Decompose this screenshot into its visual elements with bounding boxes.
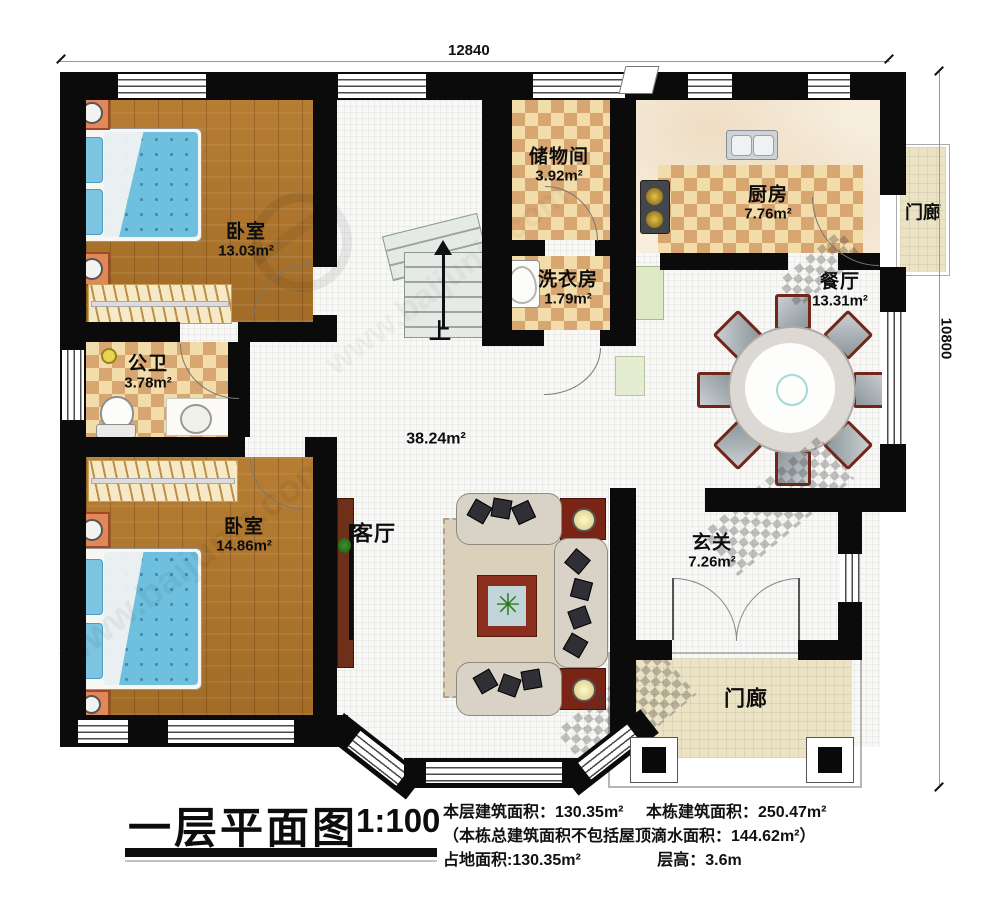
dimension-label-top: 12840 xyxy=(448,42,490,59)
coffee-table: ✳ xyxy=(477,575,537,637)
ceiling-lamp xyxy=(101,348,117,364)
porch-column-core xyxy=(642,747,666,773)
room-area: 1.79m² xyxy=(538,291,598,307)
dimension-line-top xyxy=(60,61,890,62)
info-floor-height: 层高：3.6m xyxy=(657,852,741,869)
sink-bowl xyxy=(753,135,774,156)
wall-storage-divider-b xyxy=(595,240,610,256)
room-label-dining: 餐厅 13.31m² xyxy=(812,273,868,310)
sofa-cushion xyxy=(490,497,512,519)
room-label-bedroom2: 卧室 14.86m² xyxy=(216,518,272,555)
dimension-line-right xyxy=(939,72,940,788)
closet xyxy=(88,460,238,502)
closet xyxy=(88,284,232,324)
window xyxy=(688,74,732,98)
sink-basin xyxy=(180,404,212,434)
room-label-porch-bottom: 门廊 xyxy=(724,689,768,712)
window xyxy=(62,350,84,420)
porch-column xyxy=(806,737,854,783)
blanket xyxy=(104,132,198,237)
room-area: 13.31m² xyxy=(812,293,868,309)
door-leaf xyxy=(672,578,674,640)
wall-step-right xyxy=(838,488,906,512)
room-area: 3.78m² xyxy=(124,375,172,391)
room-label-storage: 储物间 3.92m² xyxy=(529,148,589,185)
stairs-up-label: 上 xyxy=(429,320,451,344)
cabinet-green xyxy=(615,356,645,396)
burner xyxy=(646,211,663,228)
wall-bedroom1-bottom-b xyxy=(238,322,337,342)
room-label-bedroom1: 卧室 13.03m² xyxy=(218,223,274,260)
room-name: 卧室 xyxy=(218,223,274,244)
floor-plan-canvas: 12840 10800 www.baijunjz.com www.baijunj… xyxy=(0,0,1000,914)
room-area: 7.26m² xyxy=(688,554,736,570)
room-name: 卧室 xyxy=(216,518,272,539)
room-label-living-name: 客厅 xyxy=(352,524,396,547)
window xyxy=(840,554,860,602)
room-name: 厨房 xyxy=(744,186,792,207)
info-floor-area: 本层建筑面积：130.35m² xyxy=(443,804,624,821)
dimension-tick xyxy=(56,54,66,64)
room-name: 玄关 xyxy=(688,534,736,555)
wall-bedroom2-top-a xyxy=(60,437,245,457)
room-area: 38.24m² xyxy=(406,430,466,447)
info-line-2: （本栋总建筑面积不包括屋顶滴水面积：144.62m²） xyxy=(443,822,816,846)
table-lamp-icon xyxy=(572,678,596,702)
dining-table-center xyxy=(776,374,808,406)
plant-small xyxy=(338,538,351,553)
room-name: 门廊 xyxy=(724,689,768,712)
info-line-1: 本层建筑面积：130.35m² 本栋建筑面积：250.47m² xyxy=(443,798,826,822)
wall-bedroom2-top-b xyxy=(305,437,337,457)
title-underline-thin xyxy=(125,860,437,862)
wall-foyer-left xyxy=(610,488,636,740)
closet-rod xyxy=(91,478,235,484)
kitchen-sink xyxy=(726,130,778,160)
wall-laundry-bottom-a xyxy=(482,330,544,346)
dimension-tick xyxy=(884,54,894,64)
wall-laundry-bottom-b xyxy=(600,330,610,346)
plan-scale: 1:100 xyxy=(356,802,440,840)
sink-bowl xyxy=(731,135,752,156)
side-table xyxy=(560,498,606,540)
wall-bedroom1-right-a xyxy=(313,100,337,267)
porch-column xyxy=(630,737,678,783)
wall-right-upper xyxy=(880,72,906,195)
wall-right-mid xyxy=(880,267,906,312)
room-label-living-area: 38.24m² xyxy=(406,430,466,447)
wall-bedroom1-bottom-a xyxy=(60,322,180,342)
door-leaf xyxy=(798,578,800,640)
info-line-3: 占地面积:130.35m² 层高：3.6m xyxy=(443,846,742,870)
room-label-foyer: 玄关 7.26m² xyxy=(688,534,736,571)
room-area: 7.76m² xyxy=(744,206,792,222)
room-label-porch-right: 门廊 xyxy=(905,203,941,222)
cabinet-green xyxy=(632,266,664,320)
wall-storage-divider-a xyxy=(512,240,545,256)
room-label-bathroom: 公卫 3.78m² xyxy=(124,355,172,392)
wall-foyer-right-a xyxy=(838,512,862,554)
stove xyxy=(640,180,670,234)
room-name: 储物间 xyxy=(529,148,589,169)
porch-column-core xyxy=(818,747,842,773)
wall-foyer-top xyxy=(705,488,838,512)
window xyxy=(118,74,206,98)
dining-table xyxy=(728,326,856,454)
burner xyxy=(646,188,663,205)
window xyxy=(168,720,256,743)
room-label-kitchen: 厨房 7.76m² xyxy=(744,186,792,223)
window xyxy=(808,74,850,98)
sofa-cushion xyxy=(520,668,542,690)
dimension-label-right: 10800 xyxy=(938,309,955,369)
wall-storage-right xyxy=(610,100,636,346)
title-underline xyxy=(125,848,437,857)
room-name: 门廊 xyxy=(905,203,941,222)
closet-rod xyxy=(91,301,229,307)
room-area: 3.92m² xyxy=(529,168,589,184)
wall-storage-left xyxy=(482,100,512,330)
bed xyxy=(76,128,202,242)
window xyxy=(882,312,904,444)
info-land-area: 占地面积:130.35m² xyxy=(443,852,581,869)
plan-title: 一层平面图 xyxy=(128,794,358,856)
room-name: 客厅 xyxy=(352,524,396,547)
room-area: 14.86m² xyxy=(216,538,272,554)
window xyxy=(533,74,625,98)
plant-icon: ✳ xyxy=(490,586,526,626)
table-lamp-icon xyxy=(572,508,596,532)
wall-foyer-bottom-left xyxy=(610,640,672,660)
window xyxy=(338,74,426,98)
toilet-tank xyxy=(96,424,136,438)
mattress xyxy=(104,132,198,237)
wall-kitchen-bottom xyxy=(660,253,788,270)
room-name: 洗衣房 xyxy=(538,271,598,292)
info-building-area: 本栋建筑面积：250.47m² xyxy=(646,804,827,821)
room-name: 餐厅 xyxy=(812,273,868,294)
room-label-laundry: 洗衣房 1.79m² xyxy=(538,271,598,308)
window xyxy=(426,762,562,783)
window xyxy=(78,720,128,743)
window xyxy=(252,720,294,743)
room-name: 公卫 xyxy=(124,355,172,376)
vent-flue xyxy=(619,66,660,94)
wall-bedroom2-right xyxy=(313,457,337,717)
wall-foyer-bottom-right xyxy=(798,640,852,660)
room-area: 13.03m² xyxy=(218,243,274,259)
